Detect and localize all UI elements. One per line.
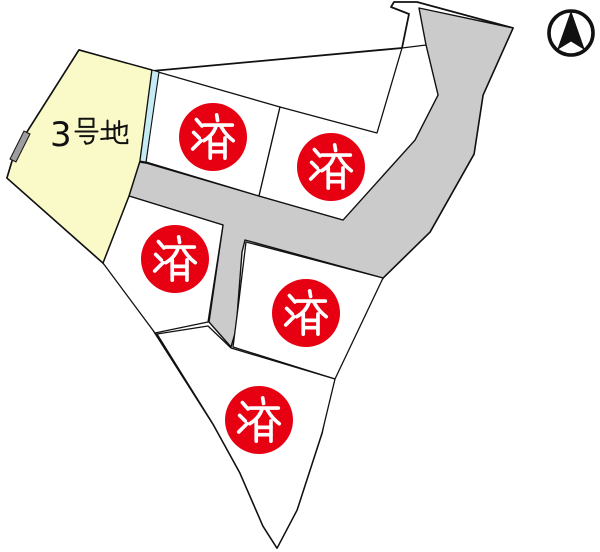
sold-stamp-4: 済 bbox=[272, 279, 340, 347]
sold-badge-circle bbox=[141, 225, 209, 293]
sold-stamp-3: 済 bbox=[141, 225, 209, 293]
north-compass-icon: north-arrow bbox=[549, 11, 593, 55]
sold-stamp-5: 済 bbox=[225, 386, 293, 454]
sold-badge-circle bbox=[272, 279, 340, 347]
lot-number-digit: 3 bbox=[50, 115, 72, 155]
sold-badge-circle bbox=[225, 386, 293, 454]
sold-stamp-1: 済 bbox=[179, 103, 247, 171]
sold-badge-circle bbox=[297, 133, 365, 201]
lot-map-canvas: 3号地 3 済 済 済 済 済 north-arrow bbox=[0, 0, 600, 552]
sold-badge-circle bbox=[179, 103, 247, 171]
sold-stamp-2: 済 bbox=[297, 133, 365, 201]
